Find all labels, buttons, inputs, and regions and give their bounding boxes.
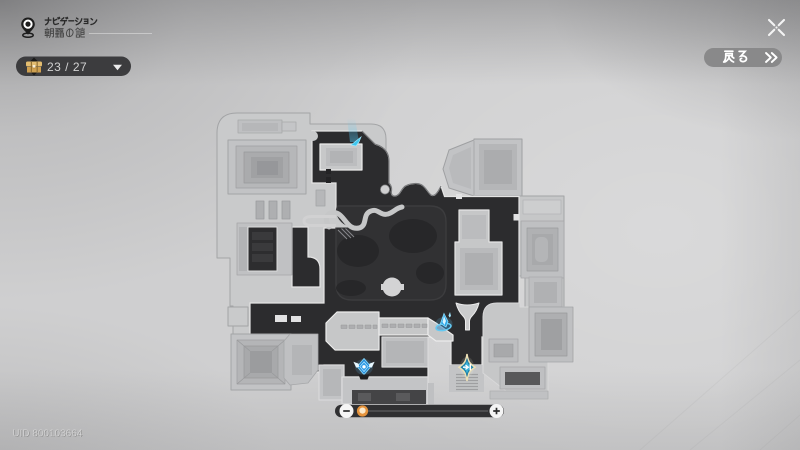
svg-text:UID 800103664: UID 800103664 <box>12 428 82 439</box>
svg-text:23 / 27: 23 / 27 <box>47 60 87 74</box>
